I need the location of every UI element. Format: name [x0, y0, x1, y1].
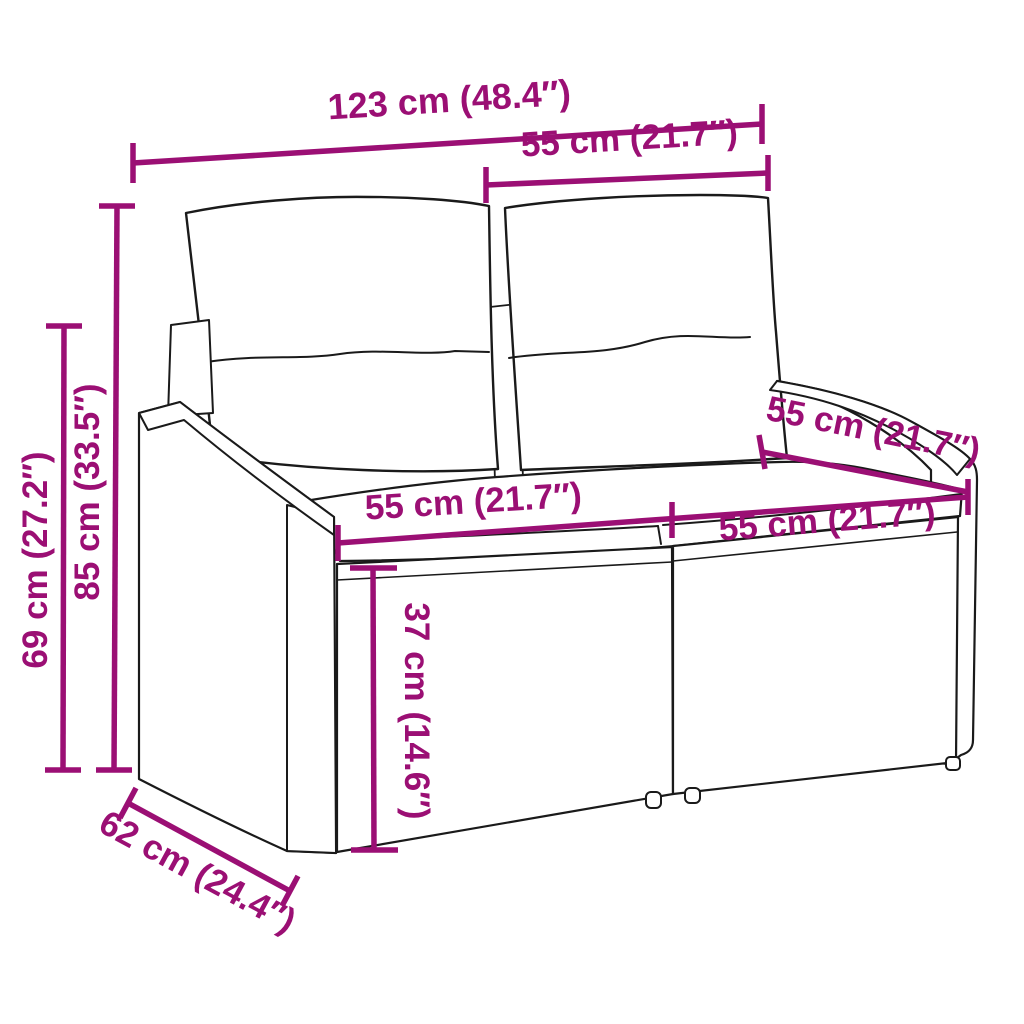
dim-back-cushion-width-label: 55 cm (21.7″) [520, 112, 739, 164]
back-cushion-right [505, 195, 787, 470]
sofa-foot [685, 788, 700, 803]
dim-total-height-label: 85 cm (33.5″) [68, 383, 107, 600]
dim-seat-height-label: 37 cm (14.6″) [397, 602, 436, 819]
dim-total-height: 85 cm (33.5″) [68, 206, 135, 770]
front-panel-right [673, 517, 958, 794]
dim-arm-height-label: 69 cm (27.2″) [16, 451, 55, 668]
dim-overall-width-label: 123 cm (48.4″) [327, 72, 572, 128]
back-cushion-left [186, 197, 498, 471]
dim-back-cushion-width: 55 cm (21.7″) [486, 112, 768, 203]
backrest-frame-left-post [168, 320, 213, 416]
dimension-diagram: 123 cm (48.4″) 55 cm (21.7″) 85 cm (33.5… [0, 0, 1024, 1024]
sofa-foot [646, 792, 661, 808]
front-panel-left [337, 547, 673, 852]
armrest-left-corner-post [287, 505, 336, 853]
sofa-foot [946, 757, 960, 770]
